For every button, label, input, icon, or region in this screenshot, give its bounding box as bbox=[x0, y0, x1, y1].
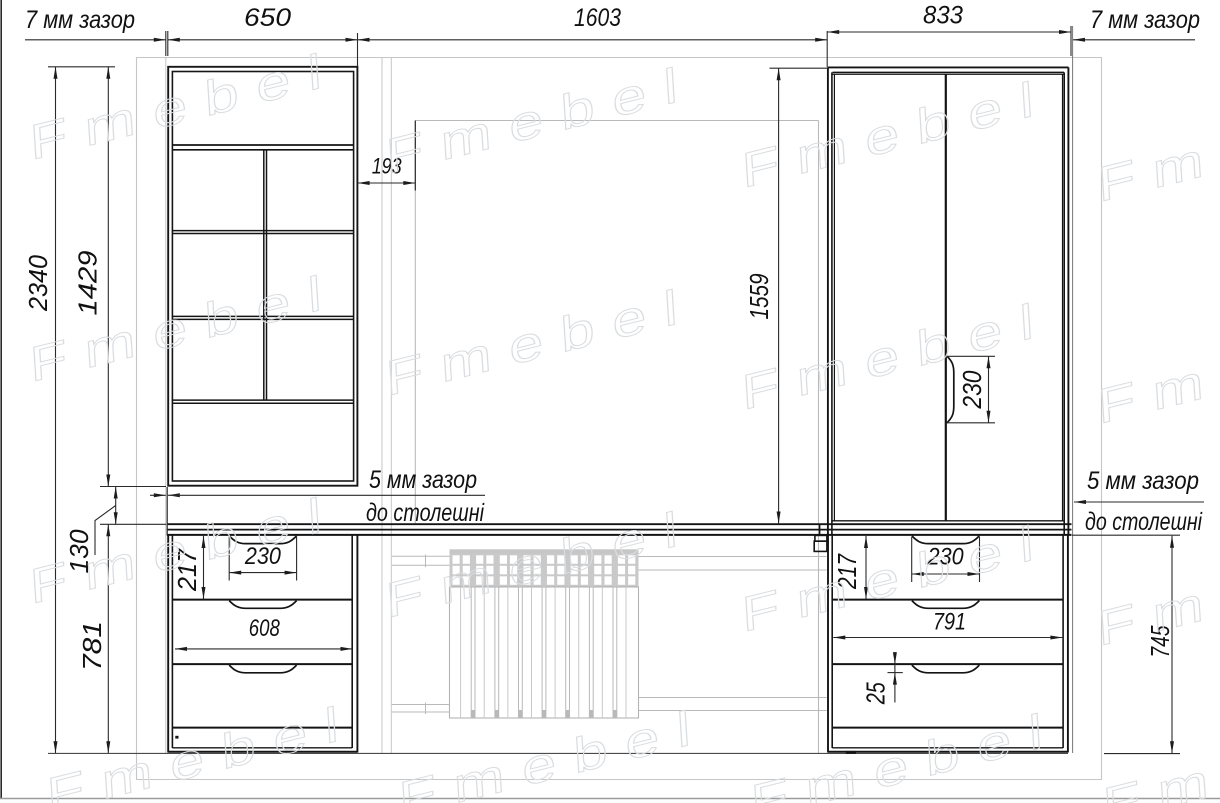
svg-text:791: 791 bbox=[933, 608, 966, 635]
svg-text:2340: 2340 bbox=[23, 254, 53, 311]
svg-text:Fmebel: Fmebel bbox=[740, 71, 1035, 198]
svg-text:до столешні: до столешні bbox=[1085, 508, 1203, 536]
svg-text:Fmebel: Fmebel bbox=[740, 293, 1035, 420]
svg-text:25: 25 bbox=[861, 682, 891, 705]
svg-text:1603: 1603 bbox=[574, 4, 621, 32]
svg-text:до столешні: до столешні bbox=[366, 499, 485, 527]
svg-text:230: 230 bbox=[957, 370, 987, 409]
svg-text:1429: 1429 bbox=[73, 251, 103, 316]
svg-text:Fmebel: Fmebel bbox=[45, 696, 340, 803]
svg-text:7 мм зазор: 7 мм зазор bbox=[25, 6, 135, 34]
svg-text:608: 608 bbox=[249, 615, 281, 642]
svg-text:5 мм зазор: 5 мм зазор bbox=[369, 466, 477, 494]
svg-text:833: 833 bbox=[923, 2, 963, 30]
svg-text:1559: 1559 bbox=[744, 274, 774, 320]
svg-text:781: 781 bbox=[77, 621, 107, 671]
svg-text:Fmebel: Fmebel bbox=[1096, 85, 1220, 212]
svg-text:Fmebel: Fmebel bbox=[1096, 529, 1220, 656]
svg-text:5 мм зазор: 5 мм зазор bbox=[1087, 467, 1199, 495]
svg-text:7 мм зазор: 7 мм зазор bbox=[1090, 6, 1200, 34]
svg-text:650: 650 bbox=[244, 4, 291, 32]
svg-text:Fmebel: Fmebel bbox=[28, 43, 323, 170]
svg-text:Fmebel: Fmebel bbox=[1096, 307, 1220, 434]
svg-text:Fmebel: Fmebel bbox=[1101, 706, 1220, 803]
svg-text:Fmebel: Fmebel bbox=[384, 279, 679, 406]
